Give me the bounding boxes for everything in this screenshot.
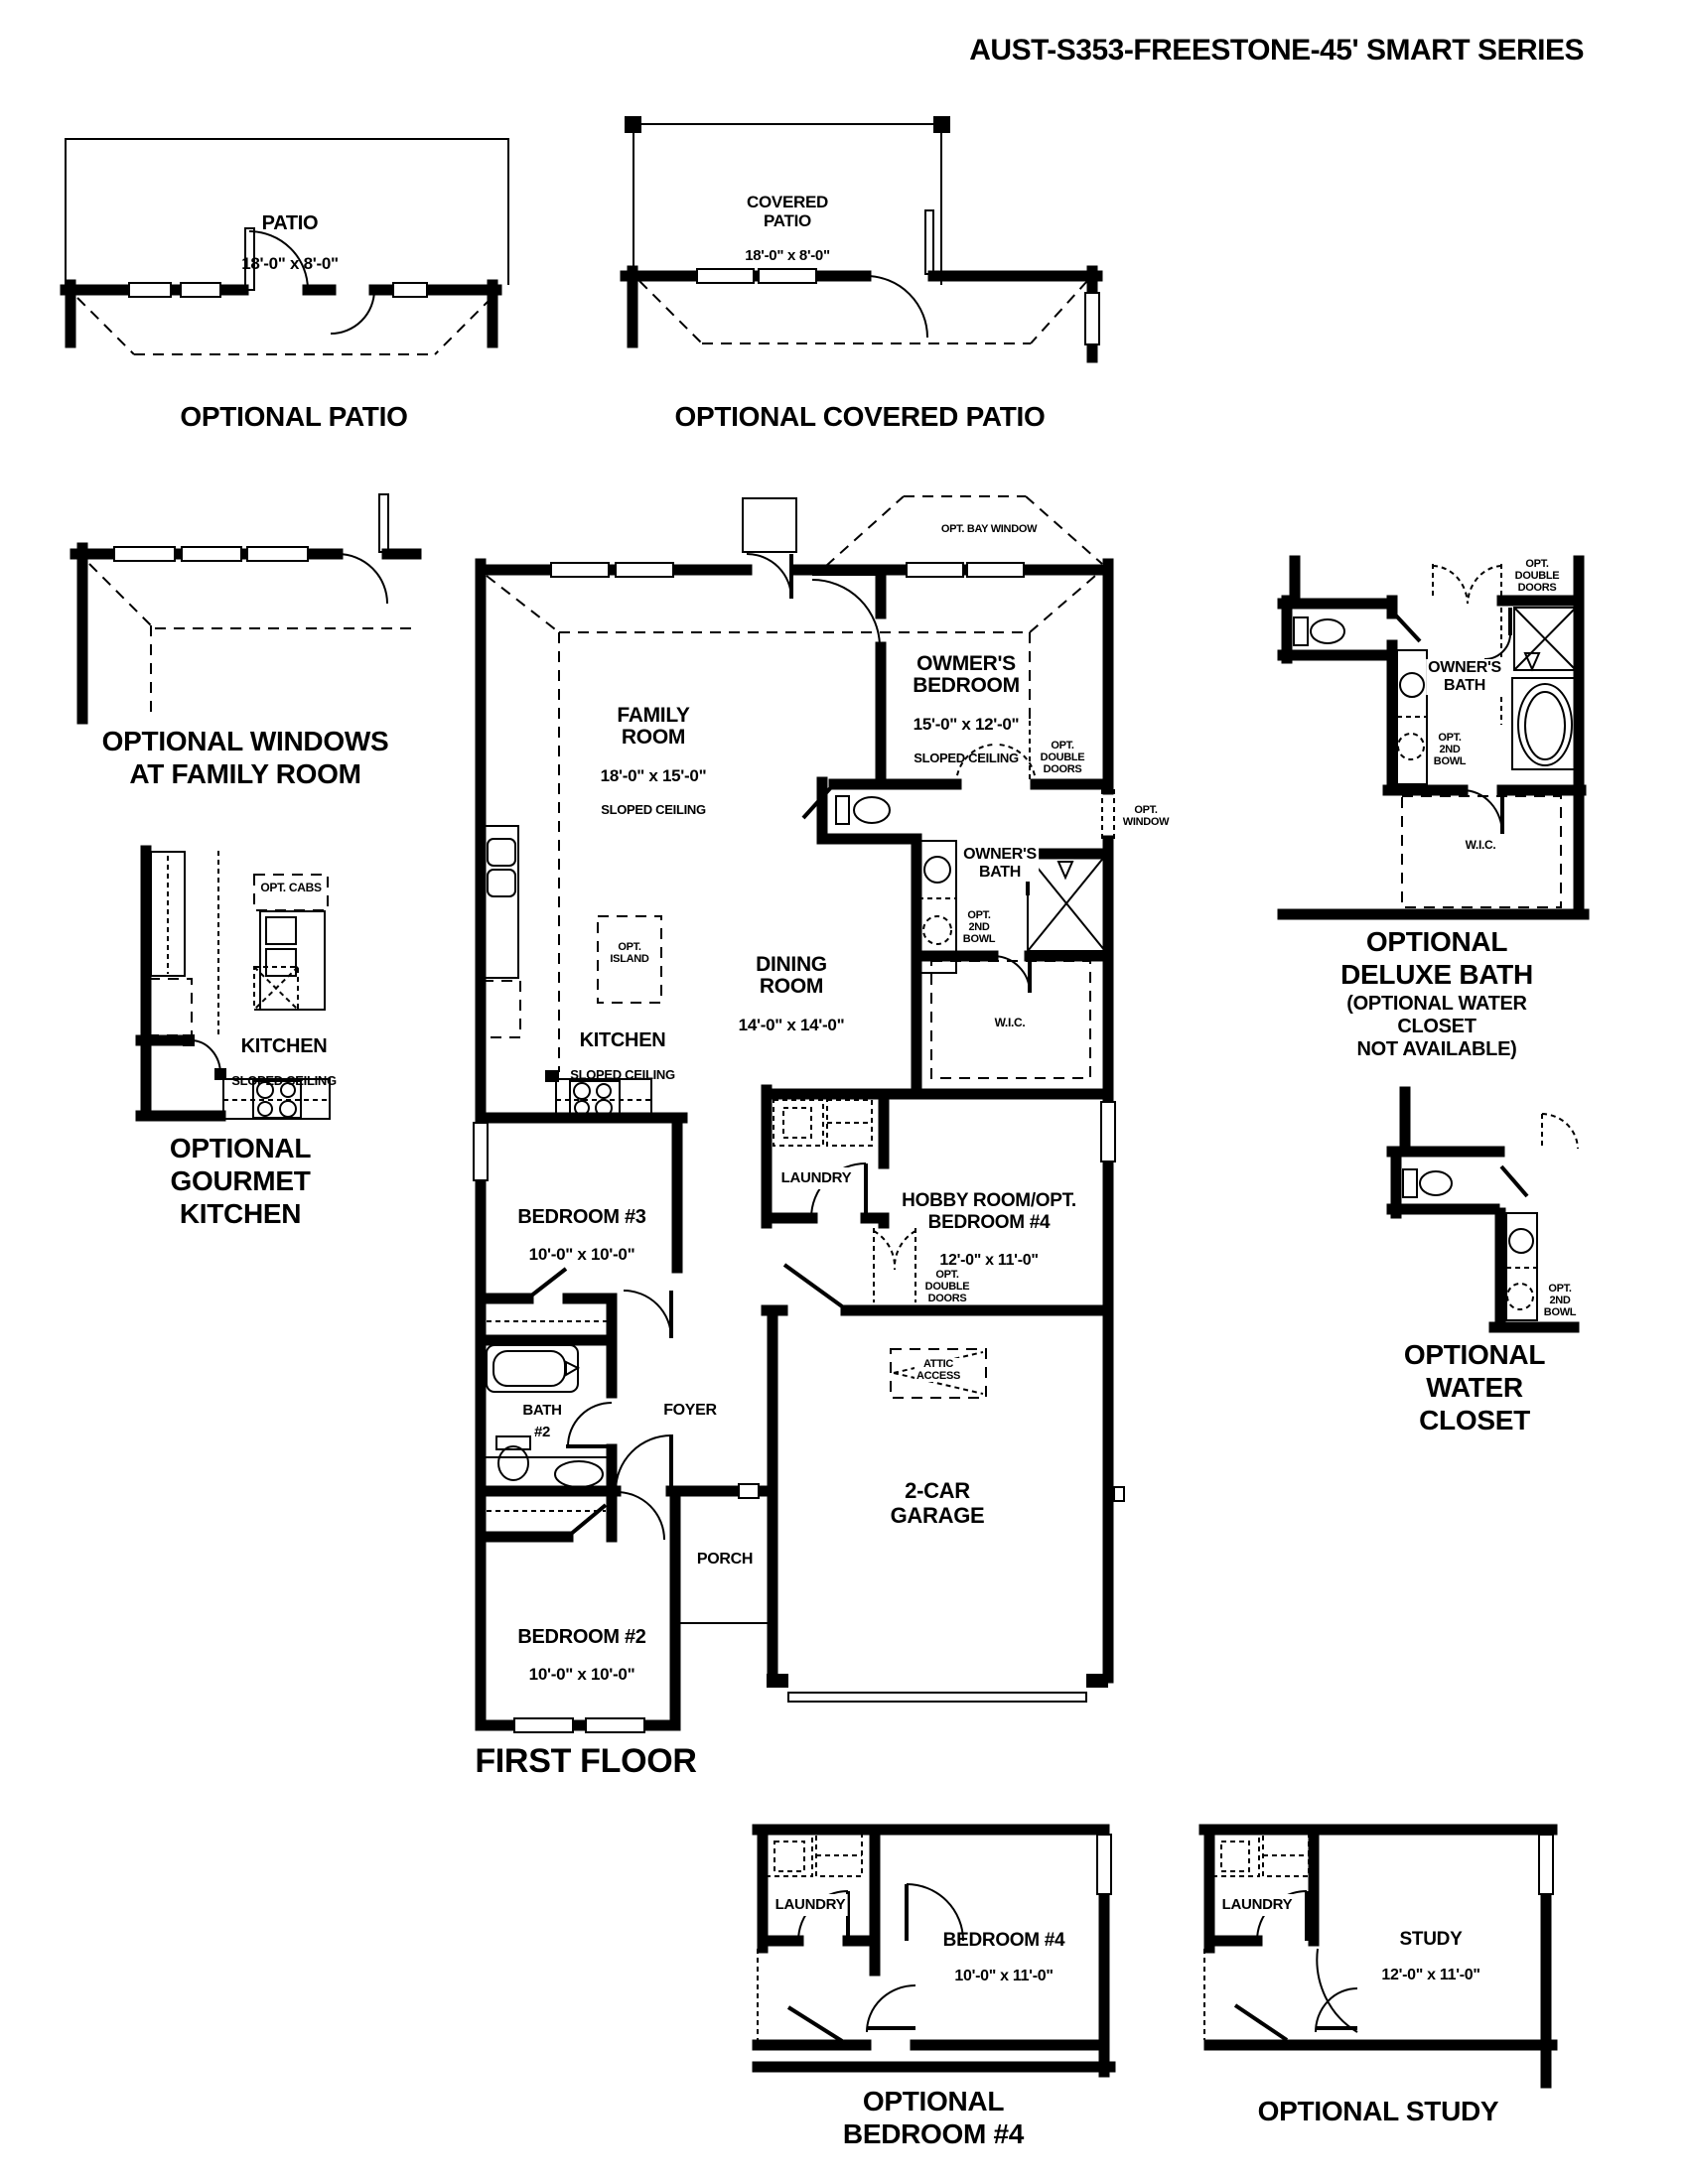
deluxe-bath-caption-sub: (OPTIONAL WATER CLOSET NOT AVAILABLE)	[1312, 993, 1563, 1061]
deluxe-2nd-bowl-label: OPT. 2ND BOWL	[1434, 732, 1466, 767]
opt-window-label: OPT. WINDOW	[1123, 804, 1169, 828]
opt-island-label: OPT. ISLAND	[608, 941, 650, 965]
optional-bedroom4-caption: OPTIONAL BEDROOM #4	[843, 2085, 1024, 2150]
bedroom4-label: BEDROOM #4 10'-0" x 11'-0"	[943, 1913, 1065, 2003]
bedroom3-label: BEDROOM #3 10'-0" x 10'-0"	[517, 1189, 645, 1282]
deluxe-doors-label: OPT. DOUBLE DOORS	[1515, 558, 1560, 594]
hobby-doors-label: OPT. DOUBLE DOORS	[923, 1269, 972, 1304]
wic-label-main: W.I.C.	[995, 1017, 1026, 1029]
opt-bay-window-label: OPT. BAY WINDOW	[941, 523, 1037, 535]
deluxe-owners-bath-label: OWNER'S BATH	[1426, 659, 1503, 695]
optional-study-caption: OPTIONAL STUDY	[1258, 2095, 1499, 2127]
optional-gourmet-caption: OPTIONAL GOURMET KITCHEN	[170, 1132, 311, 1230]
owners-bedroom-doors-label: OPT. DOUBLE DOORS	[1041, 740, 1085, 775]
optional-study-diagram	[1204, 1830, 1553, 2083]
study-label: STUDY 12'-0" x 11'-0"	[1381, 1912, 1479, 2002]
optional-covered-patio-diagram	[625, 116, 1099, 357]
owners-bath-label: OWNER'S BATH	[961, 846, 1039, 882]
bath2-label: BATH #2	[522, 1400, 561, 1443]
family-room-label: FAMILY ROOM 18'-0" x 15'-0" SLOPED CEILI…	[601, 687, 707, 835]
water-closet-caption: OPTIONAL WATER CLOSET	[1368, 1338, 1582, 1436]
opt-cabs-label: OPT. CABS	[260, 882, 321, 894]
dining-room-label: DINING ROOM 14'-0" x 14'-0"	[739, 936, 845, 1052]
deluxe-wic-label: W.I.C.	[1466, 839, 1496, 852]
bedroom2-label: BEDROOM #2 10'-0" x 10'-0"	[517, 1609, 645, 1702]
first-floor-diagram	[474, 496, 1124, 1732]
opt-2nd-bowl-label-main: OPT. 2ND BOWL	[963, 909, 995, 945]
kitchen-label-main: KITCHEN SLOPED CEILING	[570, 1013, 675, 1100]
optional-patio-caption: OPTIONAL PATIO	[180, 400, 407, 433]
optional-windows-caption: OPTIONAL WINDOWS AT FAMILY ROOM	[102, 725, 389, 790]
laundry-label-main: LAUNDRY	[779, 1167, 854, 1189]
wc-2nd-bowl-label: OPT. 2ND BOWL	[1544, 1283, 1576, 1318]
b4-laundry-label: LAUNDRY	[774, 1894, 848, 1916]
plan-title: AUST-S353-FREESTONE-45' SMART SERIES	[969, 34, 1584, 68]
floorplan-page: AUST-S353-FREESTONE-45' SMART SERIES PAT…	[0, 0, 1688, 2184]
attic-access-label: ATTIC ACCESS	[914, 1358, 962, 1382]
porch-label: PORCH	[697, 1551, 753, 1569]
optional-windows-family-room-diagram	[75, 494, 416, 719]
optional-covered-patio-caption: OPTIONAL COVERED PATIO	[675, 400, 1046, 433]
patio-room-label: PATIO 18'-0" x 8'-0"	[241, 193, 339, 291]
gourmet-kitchen-label: KITCHEN SLOPED CEILING	[231, 1019, 337, 1106]
study-laundry-label: LAUNDRY	[1220, 1894, 1295, 1916]
deluxe-bath-caption: OPTIONAL DELUXE BATH	[1340, 925, 1533, 991]
garage-label: 2-CAR GARAGE	[891, 1479, 985, 1528]
owners-bedroom-label: OWMER'S BEDROOM 15'-0" x 12'-0" SLOPED C…	[913, 635, 1020, 783]
covered-patio-room-label: COVERED PATIO 18'-0" x 8'-0"	[745, 175, 830, 282]
foyer-label: FOYER	[663, 1402, 717, 1420]
first-floor-caption: FIRST FLOOR	[475, 1742, 696, 1780]
